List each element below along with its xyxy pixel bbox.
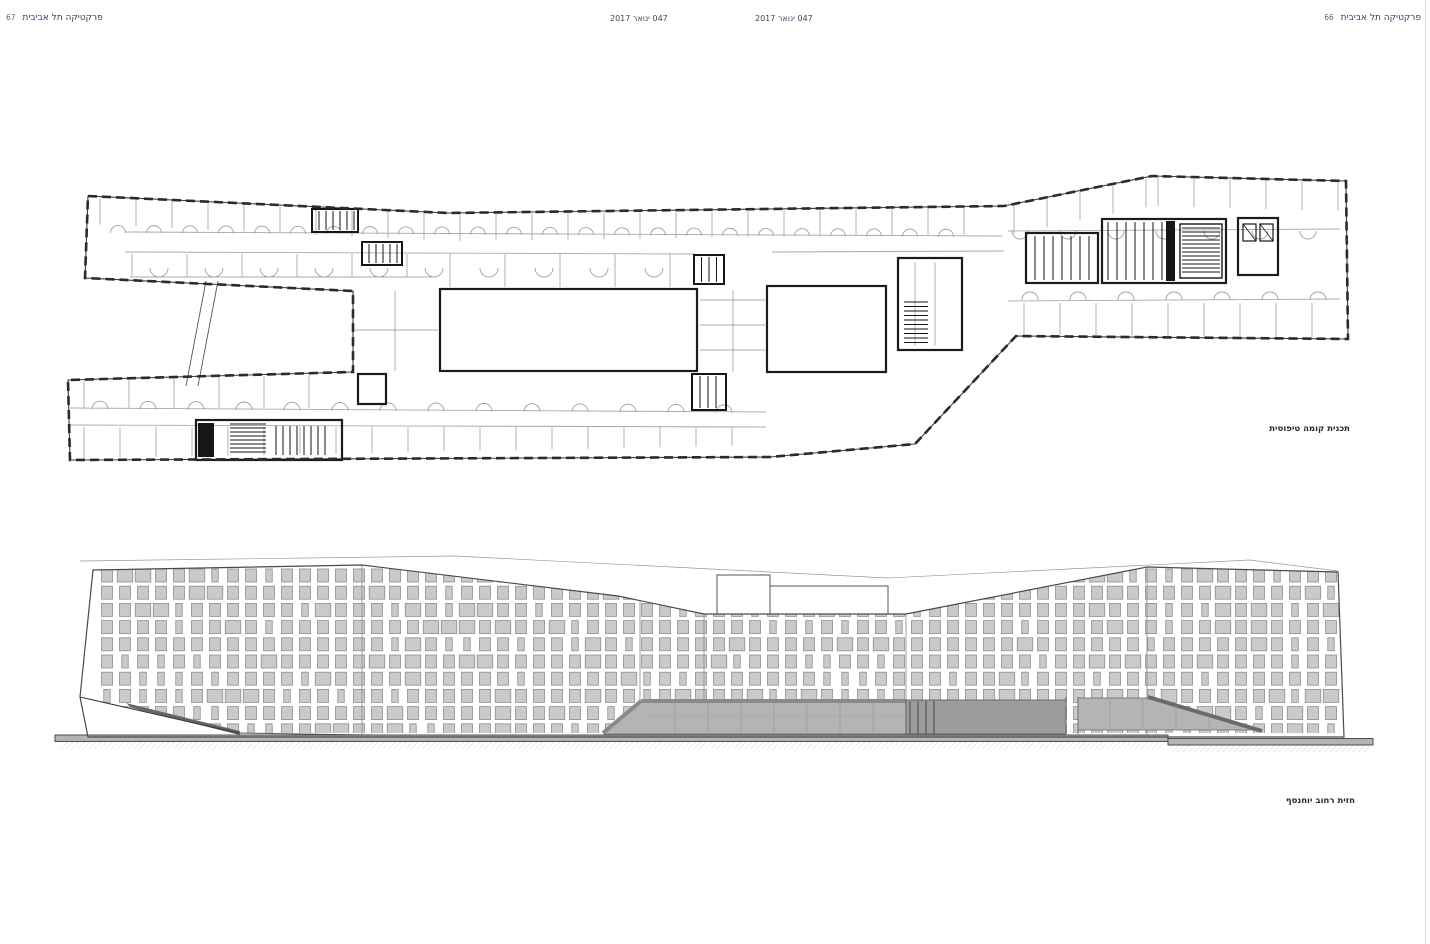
page-edge-line (1425, 0, 1426, 944)
architectural-drawings (0, 0, 1430, 944)
plan-caption: תכנית קומה טיפוסית (1269, 424, 1350, 434)
elevation-drawing (55, 556, 1373, 753)
floor-plan-drawing (68, 176, 1348, 460)
elevation-caption: חזית רחוב יוחנסף (1286, 796, 1355, 806)
magazine-spread: פרקטיקה תל אביבית 67 047 ינואר 2017 047 … (0, 0, 1430, 944)
